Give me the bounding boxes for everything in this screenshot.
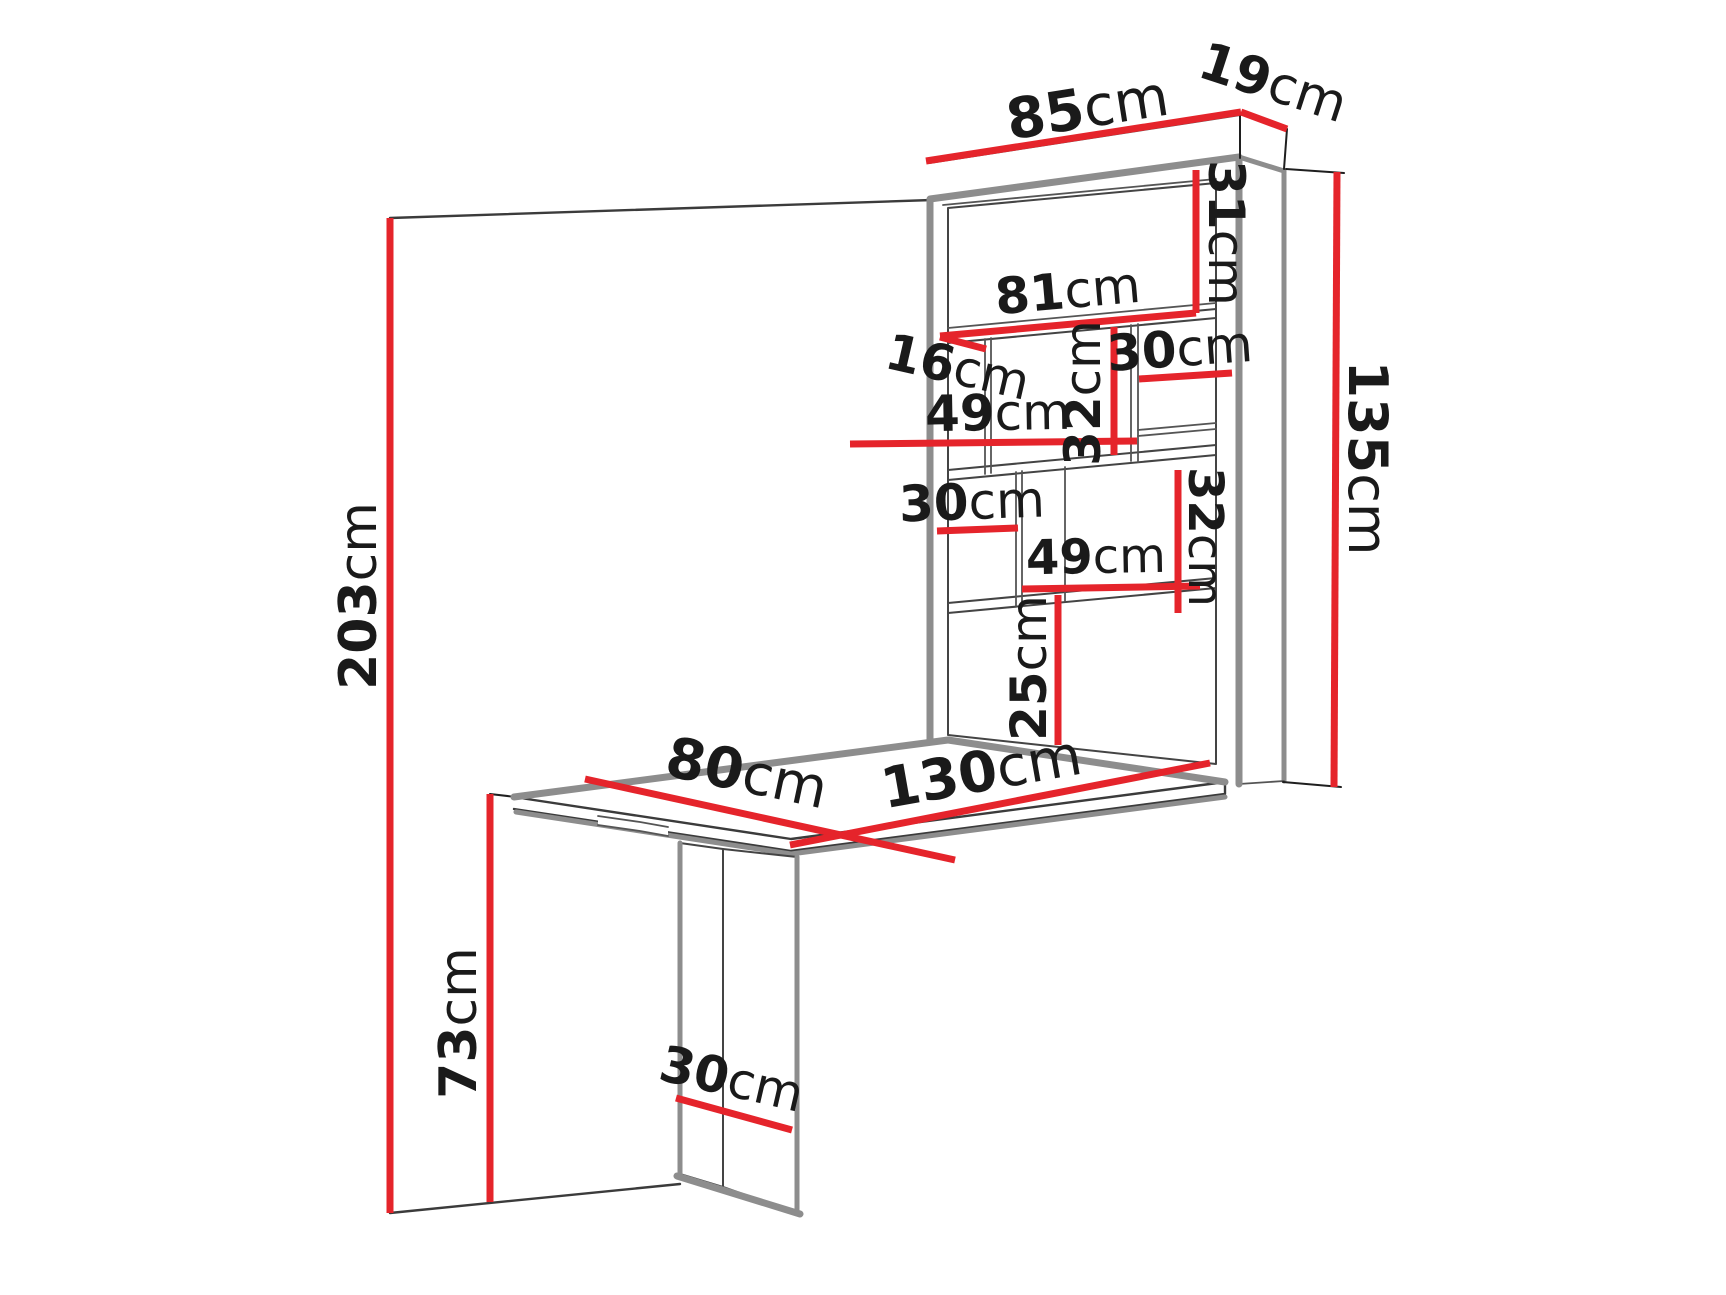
diagram-background [0,0,1726,1295]
dimension-upper-right-cubby-width: 30cm [1105,314,1254,382]
leg-side-panel [723,849,797,1213]
desk-leg [677,843,800,1214]
dimension-label-top-compartment-height: 31cm [1198,160,1256,306]
dimension-lower-right-section-height: 32cm [1177,467,1233,613]
dimension-label-total-height: 203cm [329,502,389,690]
dimension-line-lower-right-section-width [1022,586,1200,589]
dimension-label-lower-left-cubby-width: 30cm [898,470,1046,533]
dimension-label-upper-right-cubby-width: 30cm [1105,314,1254,382]
dimension-label-middle-section-width: 49cm [925,382,1072,443]
dimension-label-lower-right-section-width: 49cm [1025,528,1166,586]
dimension-label-middle-section-height: 32cm [1054,320,1112,466]
dimension-middle-section-height: 32cm [1054,320,1115,466]
dimension-label-bottom-compartment-height: 25cm [1000,595,1058,741]
furniture-dimension-diagram: 85cm19cm31cm81cm16cm49cm32cm30cm30cm49cm… [0,0,1726,1295]
diagram-stage: 85cm19cm31cm81cm16cm49cm32cm30cm30cm49cm… [0,0,1726,1295]
leg-front-panel [680,843,723,1187]
dimension-bottom-compartment-height: 25cm [1000,595,1059,745]
dimension-lower-left-cubby-width: 30cm [898,470,1046,533]
dimension-label-desk-height: 73cm [429,947,489,1099]
dimension-label-lower-right-section-height: 32cm [1177,467,1233,607]
dimension-label-cabinet-height: 135cm [1336,360,1399,555]
dimension-top-compartment-height: 31cm [1196,160,1256,313]
